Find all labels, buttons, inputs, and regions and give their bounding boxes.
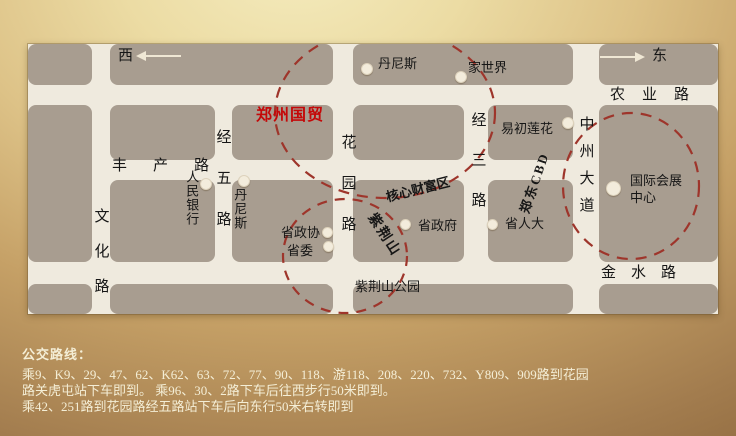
poi-label-exhibition-line2: 中心: [630, 191, 656, 205]
west-arrow-icon: [145, 55, 181, 57]
bus-info-line: 乘42、251路到花园路经五路站下车后向东行50米右转即到: [22, 399, 722, 415]
road-label-huayuan: 花园路: [339, 134, 356, 257]
road-label-nongye: 农业路: [610, 87, 706, 104]
road-label-jingsan: 经三路: [469, 112, 486, 232]
poi-label-shengzhengfu: 省政府: [418, 219, 457, 233]
compass-west-label: 西: [118, 48, 133, 65]
map-panel: 西 东 郑州国贸 农业路 丰产路 金水路 文化路 经五路 花园路 经三路 中州大…: [28, 44, 718, 314]
map-title-zhengzhou-guomao: 郑州国贸: [256, 107, 324, 125]
city-block: [28, 105, 92, 262]
city-block: [28, 284, 92, 314]
poi-dot-jiashijie: [455, 71, 467, 83]
city-block: [599, 284, 718, 314]
poi-label-shengwei: 省委: [287, 244, 313, 258]
poi-label-jiashijie: 家世界: [468, 61, 507, 75]
road-label-jingwu: 经五路: [214, 129, 231, 252]
poi-label-renmin-bank: 人民银行: [184, 170, 198, 226]
bus-info-heading: 公交路线：: [22, 347, 722, 363]
area-label-zijinshan-park: 紫荆山公园: [355, 280, 420, 294]
poi-dot-yichulianhua: [562, 117, 574, 129]
bus-route-info: 公交路线： 乘9、K9、29、47、62、K62、63、72、77、90、118…: [22, 347, 722, 415]
poi-label-shengrenda: 省人大: [505, 217, 544, 231]
road-label-jinshui: 金水路: [601, 265, 691, 282]
poi-dot-dennis-north: [361, 63, 373, 75]
poi-dot-shengzhengfu: [400, 219, 411, 230]
road-label-wenhua: 文化路: [92, 208, 109, 313]
poi-dot-exhibition-center: [606, 181, 621, 196]
city-block: [110, 180, 215, 262]
poi-dot-shengwei: [323, 241, 334, 252]
poi-dot-shengrenda: [487, 219, 498, 230]
poi-dot-renmin-bank: [200, 178, 212, 190]
poi-label-dennis-north: 丹尼斯: [378, 57, 417, 71]
poi-dot-dennis-west: [238, 175, 250, 187]
poi-dot-shengzhengxie: [322, 227, 333, 238]
city-block: [232, 180, 333, 262]
road-label-zhongzhou: 中州大道: [577, 116, 594, 224]
city-block: [110, 284, 333, 314]
city-block: [110, 105, 215, 160]
compass-east-label: 东: [652, 48, 667, 65]
poi-label-yichulianhua: 易初莲花: [501, 122, 553, 136]
east-arrow-icon: [600, 56, 636, 58]
poi-label-shengzhengxie: 省政协: [281, 226, 320, 240]
city-block: [28, 44, 92, 85]
poi-label-dennis-west: 丹尼斯: [232, 188, 246, 230]
bus-info-line: 乘9、K9、29、47、62、K62、63、72、77、90、118、游118、…: [22, 367, 722, 383]
city-block: [353, 105, 464, 160]
poi-label-exhibition-line1: 国际会展: [630, 174, 682, 188]
bus-info-line: 路关虎屯站下车即到。 乘96、30、2路下车后往西步行50米即到。: [22, 383, 722, 399]
